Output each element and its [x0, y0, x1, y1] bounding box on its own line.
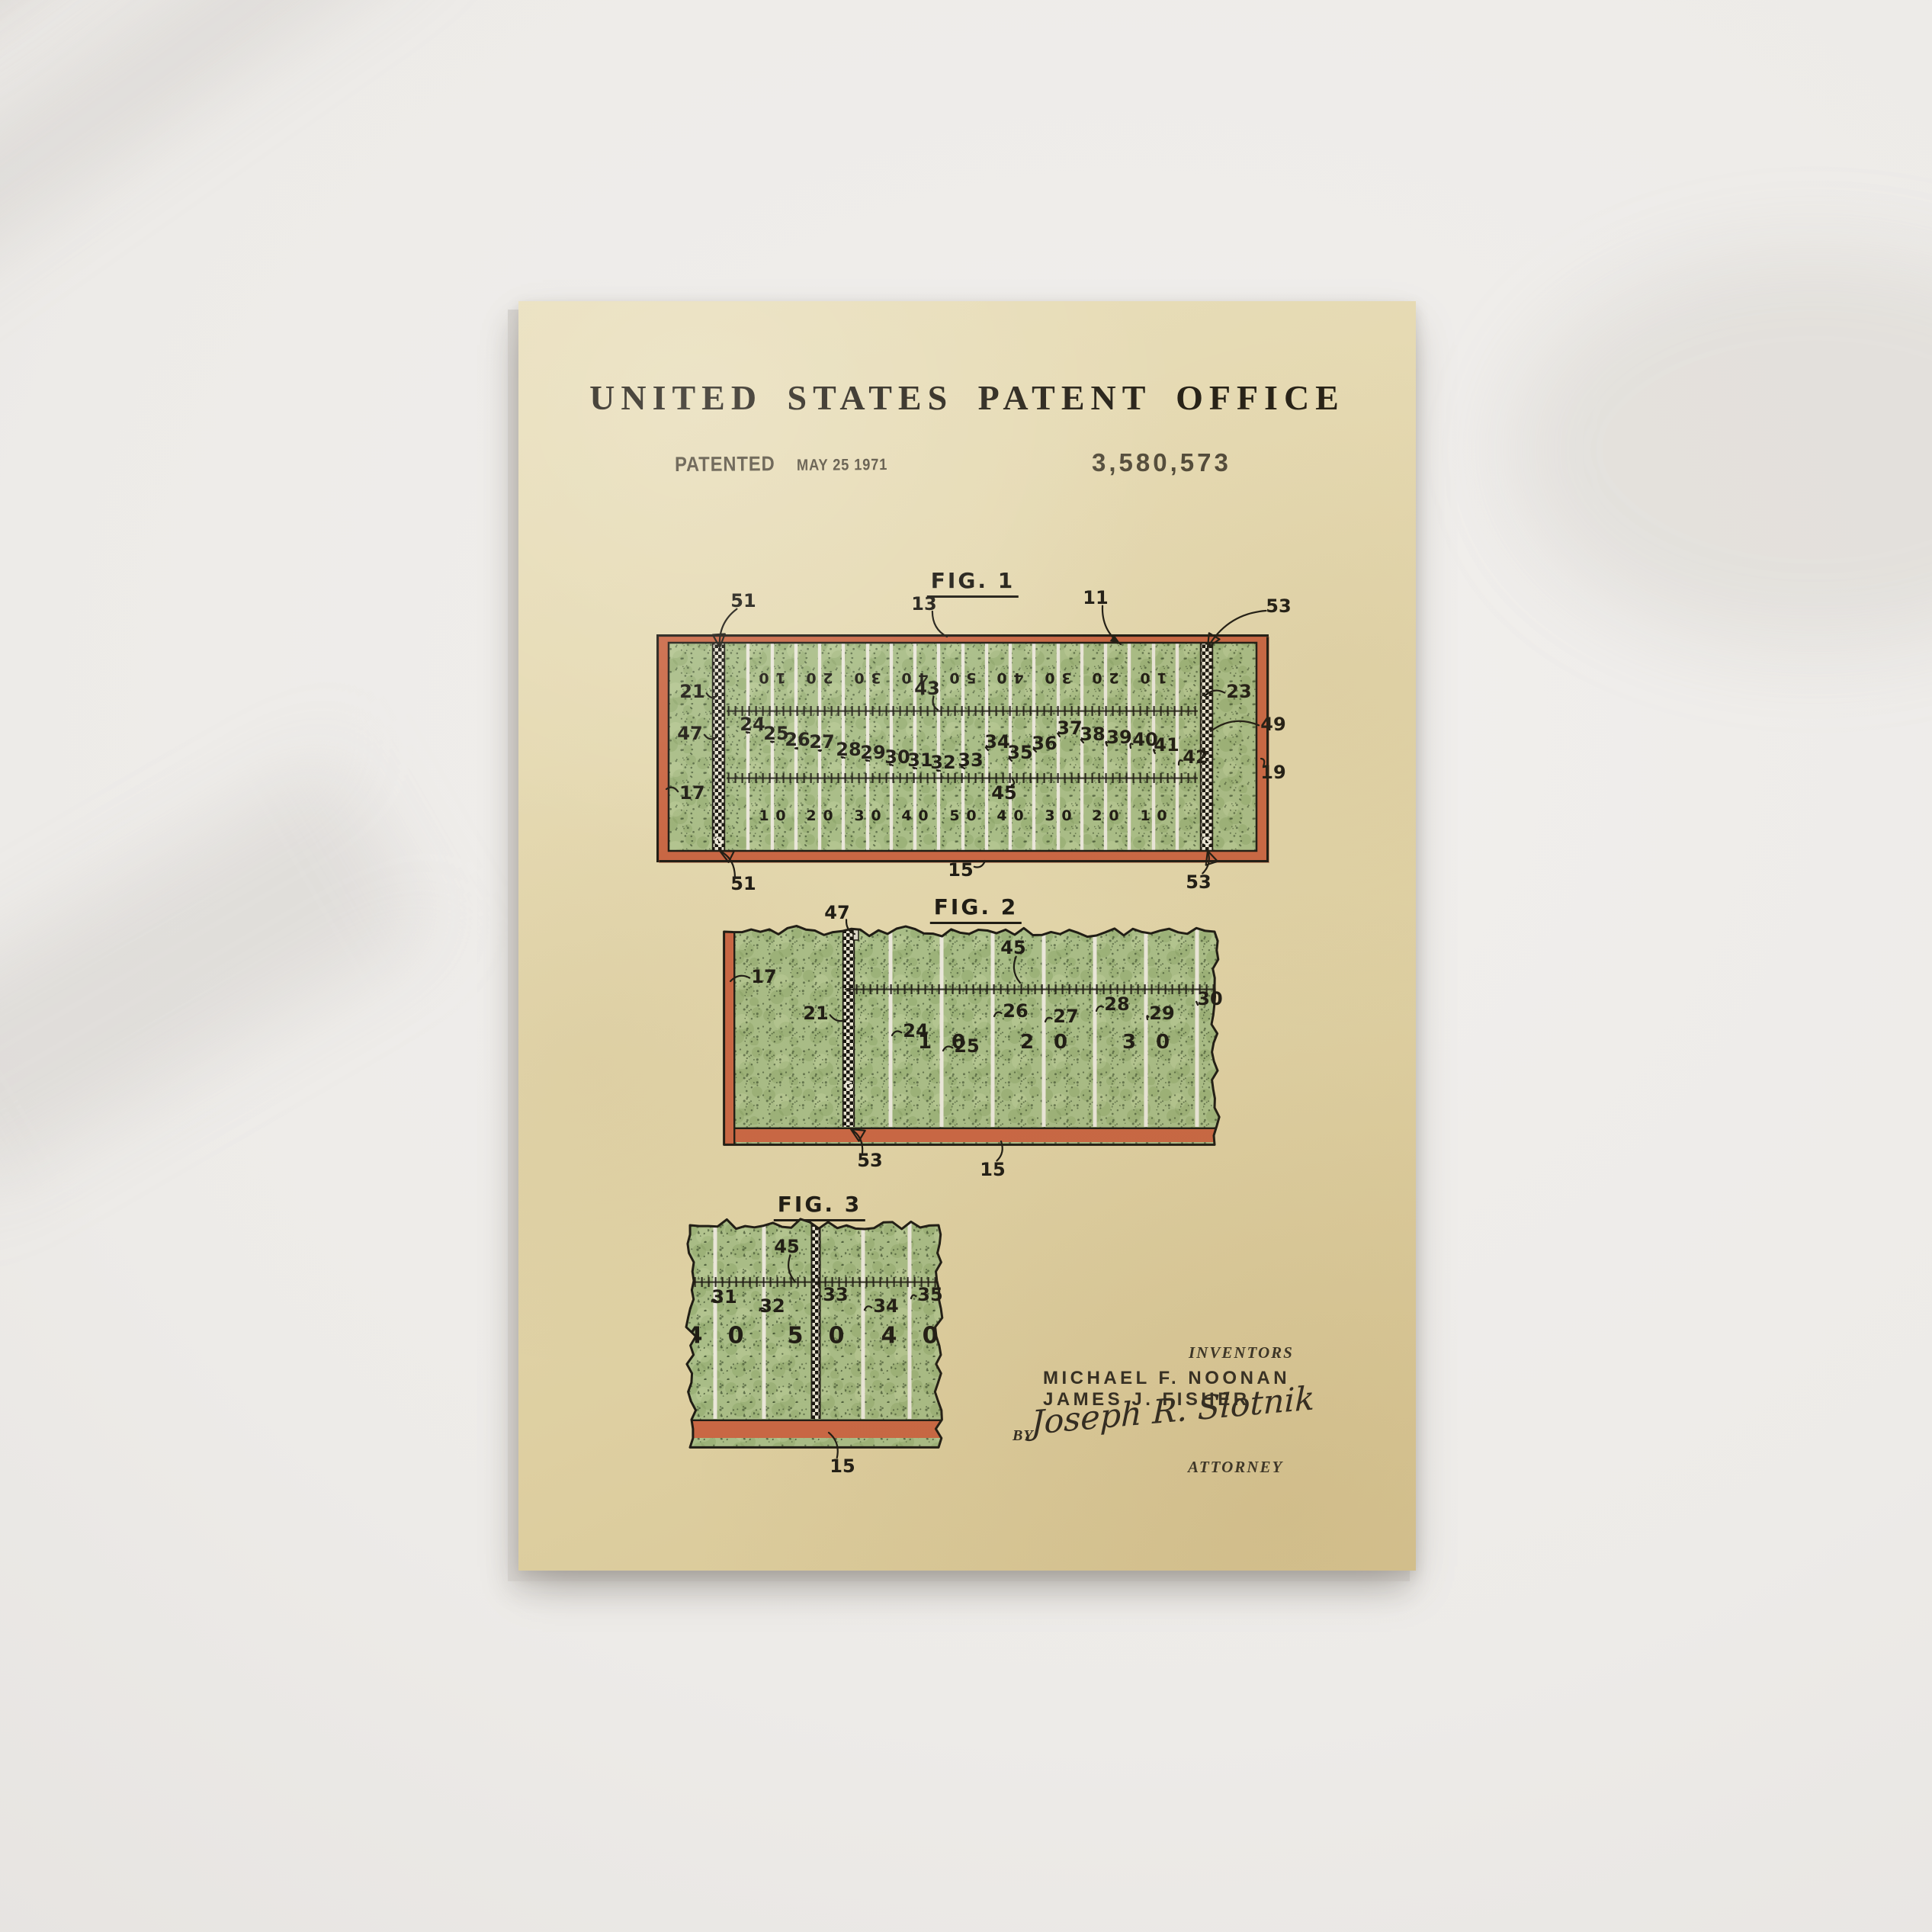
svg-text:0: 0 — [1109, 807, 1118, 824]
svg-text:5: 5 — [949, 807, 959, 824]
svg-text:43: 43 — [914, 678, 939, 699]
svg-text:4: 4 — [996, 807, 1006, 824]
svg-text:2: 2 — [806, 807, 816, 824]
svg-text:15: 15 — [980, 1159, 1005, 1180]
svg-text:G: G — [714, 836, 724, 848]
svg-text:23: 23 — [1226, 681, 1251, 702]
svg-text:37: 37 — [1057, 717, 1082, 739]
patent-office-title: UNITED STATES PATENT OFFICE — [518, 377, 1416, 418]
svg-text:1: 1 — [1140, 807, 1150, 824]
figure-2: FIG. 2 G10203047451721242526272829305315 — [717, 888, 1281, 1193]
svg-text:3: 3 — [1045, 807, 1054, 824]
svg-text:1: 1 — [1157, 669, 1167, 686]
patented-stamp: PATENTED MAY 25 1971 — [675, 451, 901, 477]
figure-1: FIG. 1 GG1020304050403020101020304050403… — [633, 560, 1304, 911]
svg-text:30: 30 — [884, 746, 910, 768]
svg-text:0: 0 — [829, 1323, 845, 1350]
svg-text:11: 11 — [1083, 587, 1108, 608]
figure-3-drawing: 40504045313233343515 — [671, 1186, 961, 1487]
svg-text:33: 33 — [823, 1284, 848, 1305]
svg-text:0: 0 — [1045, 669, 1054, 686]
svg-text:0: 0 — [775, 807, 785, 824]
svg-text:28: 28 — [1104, 993, 1129, 1015]
svg-text:0: 0 — [806, 669, 816, 686]
figure-3: FIG. 3 40504045313233343515 — [671, 1186, 961, 1487]
svg-text:29: 29 — [1149, 1003, 1174, 1024]
svg-text:0: 0 — [1054, 1031, 1067, 1054]
svg-text:0: 0 — [996, 669, 1006, 686]
svg-text:2: 2 — [1109, 669, 1118, 686]
svg-text:26: 26 — [1003, 1000, 1028, 1022]
svg-text:2: 2 — [823, 669, 833, 686]
svg-text:24: 24 — [903, 1020, 928, 1041]
svg-text:36: 36 — [1032, 733, 1057, 754]
figure-2-drawing: G10203047451721242526272829305315 — [717, 888, 1281, 1193]
svg-text:0: 0 — [871, 807, 881, 824]
svg-text:45: 45 — [1000, 937, 1025, 958]
svg-text:34: 34 — [984, 731, 1009, 753]
svg-text:17: 17 — [679, 782, 704, 804]
svg-text:45: 45 — [774, 1236, 799, 1257]
svg-text:13: 13 — [911, 593, 936, 615]
svg-text:0: 0 — [1140, 669, 1150, 686]
svg-text:0: 0 — [854, 669, 864, 686]
attorney-label: ATTORNEY — [1188, 1458, 1283, 1477]
svg-text:21: 21 — [679, 681, 704, 702]
patented-label: PATENTED — [675, 452, 775, 477]
svg-text:G: G — [1202, 836, 1212, 848]
svg-text:0: 0 — [1092, 669, 1102, 686]
svg-text:47: 47 — [824, 902, 849, 923]
svg-text:35: 35 — [1007, 742, 1032, 763]
svg-text:2: 2 — [1092, 807, 1102, 824]
svg-text:53: 53 — [1266, 595, 1291, 617]
svg-text:25: 25 — [954, 1035, 979, 1057]
svg-text:45: 45 — [991, 782, 1016, 804]
svg-text:15: 15 — [830, 1455, 855, 1477]
svg-text:0: 0 — [966, 807, 976, 824]
wall-shadow-streak — [0, 0, 522, 44]
svg-text:0: 0 — [949, 669, 959, 686]
svg-text:15: 15 — [948, 859, 973, 881]
svg-text:19: 19 — [1260, 762, 1285, 783]
svg-text:1: 1 — [775, 669, 785, 686]
svg-text:0: 0 — [1061, 807, 1071, 824]
svg-text:4: 4 — [901, 807, 911, 824]
svg-text:32: 32 — [759, 1295, 785, 1317]
svg-text:31: 31 — [711, 1286, 737, 1308]
svg-text:30: 30 — [1197, 988, 1222, 1009]
svg-text:35: 35 — [917, 1284, 942, 1305]
svg-text:0: 0 — [901, 669, 911, 686]
figure-1-drawing: GG10203040504030201010203040504030201051… — [633, 560, 1304, 911]
wall-shadow-soft — [1510, 252, 1932, 648]
svg-text:0: 0 — [918, 807, 928, 824]
inventors-label: INVENTORS — [1189, 1343, 1294, 1362]
patent-number: 3,580,573 — [1092, 448, 1231, 477]
svg-text:3: 3 — [854, 807, 864, 824]
svg-text:3: 3 — [871, 669, 881, 686]
wall-shadow-streak — [0, 756, 433, 1195]
svg-text:0: 0 — [823, 807, 833, 824]
svg-text:53: 53 — [857, 1150, 882, 1171]
svg-text:5: 5 — [966, 669, 976, 686]
svg-text:31: 31 — [907, 749, 932, 771]
svg-text:32: 32 — [930, 752, 955, 773]
svg-text:0: 0 — [1156, 1031, 1170, 1054]
patented-date: MAY 25 1971 — [796, 456, 887, 475]
svg-text:0: 0 — [759, 669, 769, 686]
svg-text:0: 0 — [728, 1323, 744, 1350]
svg-text:27: 27 — [1053, 1006, 1078, 1027]
svg-text:26: 26 — [785, 729, 810, 750]
signature-block: INVENTORS MICHAEL F. NOONAN JAMES J. FIS… — [991, 1334, 1327, 1502]
svg-text:34: 34 — [873, 1295, 898, 1317]
svg-text:0: 0 — [1157, 807, 1167, 824]
scene: UNITED STATES PATENT OFFICE PATENTED MAY… — [0, 0, 1932, 1932]
wall-shadow-streak — [0, 0, 432, 326]
svg-text:24: 24 — [740, 714, 765, 735]
svg-text:49: 49 — [1260, 714, 1285, 735]
svg-text:3: 3 — [1061, 669, 1071, 686]
svg-text:4: 4 — [1013, 669, 1023, 686]
svg-text:3: 3 — [1122, 1031, 1136, 1054]
svg-text:42: 42 — [1183, 746, 1208, 768]
svg-text:51: 51 — [730, 590, 756, 611]
svg-text:1: 1 — [759, 807, 769, 824]
patent-poster: UNITED STATES PATENT OFFICE PATENTED MAY… — [518, 301, 1416, 1571]
svg-text:5: 5 — [788, 1323, 804, 1350]
svg-text:2: 2 — [1020, 1031, 1034, 1054]
svg-text:38: 38 — [1080, 724, 1105, 745]
svg-text:17: 17 — [751, 966, 776, 987]
svg-text:4: 4 — [881, 1323, 897, 1350]
svg-text:27: 27 — [809, 731, 834, 753]
svg-text:47: 47 — [677, 723, 702, 744]
svg-text:39: 39 — [1106, 727, 1131, 748]
svg-text:G: G — [844, 1080, 853, 1093]
svg-text:28: 28 — [836, 739, 861, 760]
svg-text:0: 0 — [1013, 807, 1023, 824]
svg-text:33: 33 — [958, 749, 983, 771]
svg-text:21: 21 — [803, 1003, 828, 1024]
svg-text:41: 41 — [1154, 734, 1179, 756]
svg-text:29: 29 — [860, 742, 885, 763]
